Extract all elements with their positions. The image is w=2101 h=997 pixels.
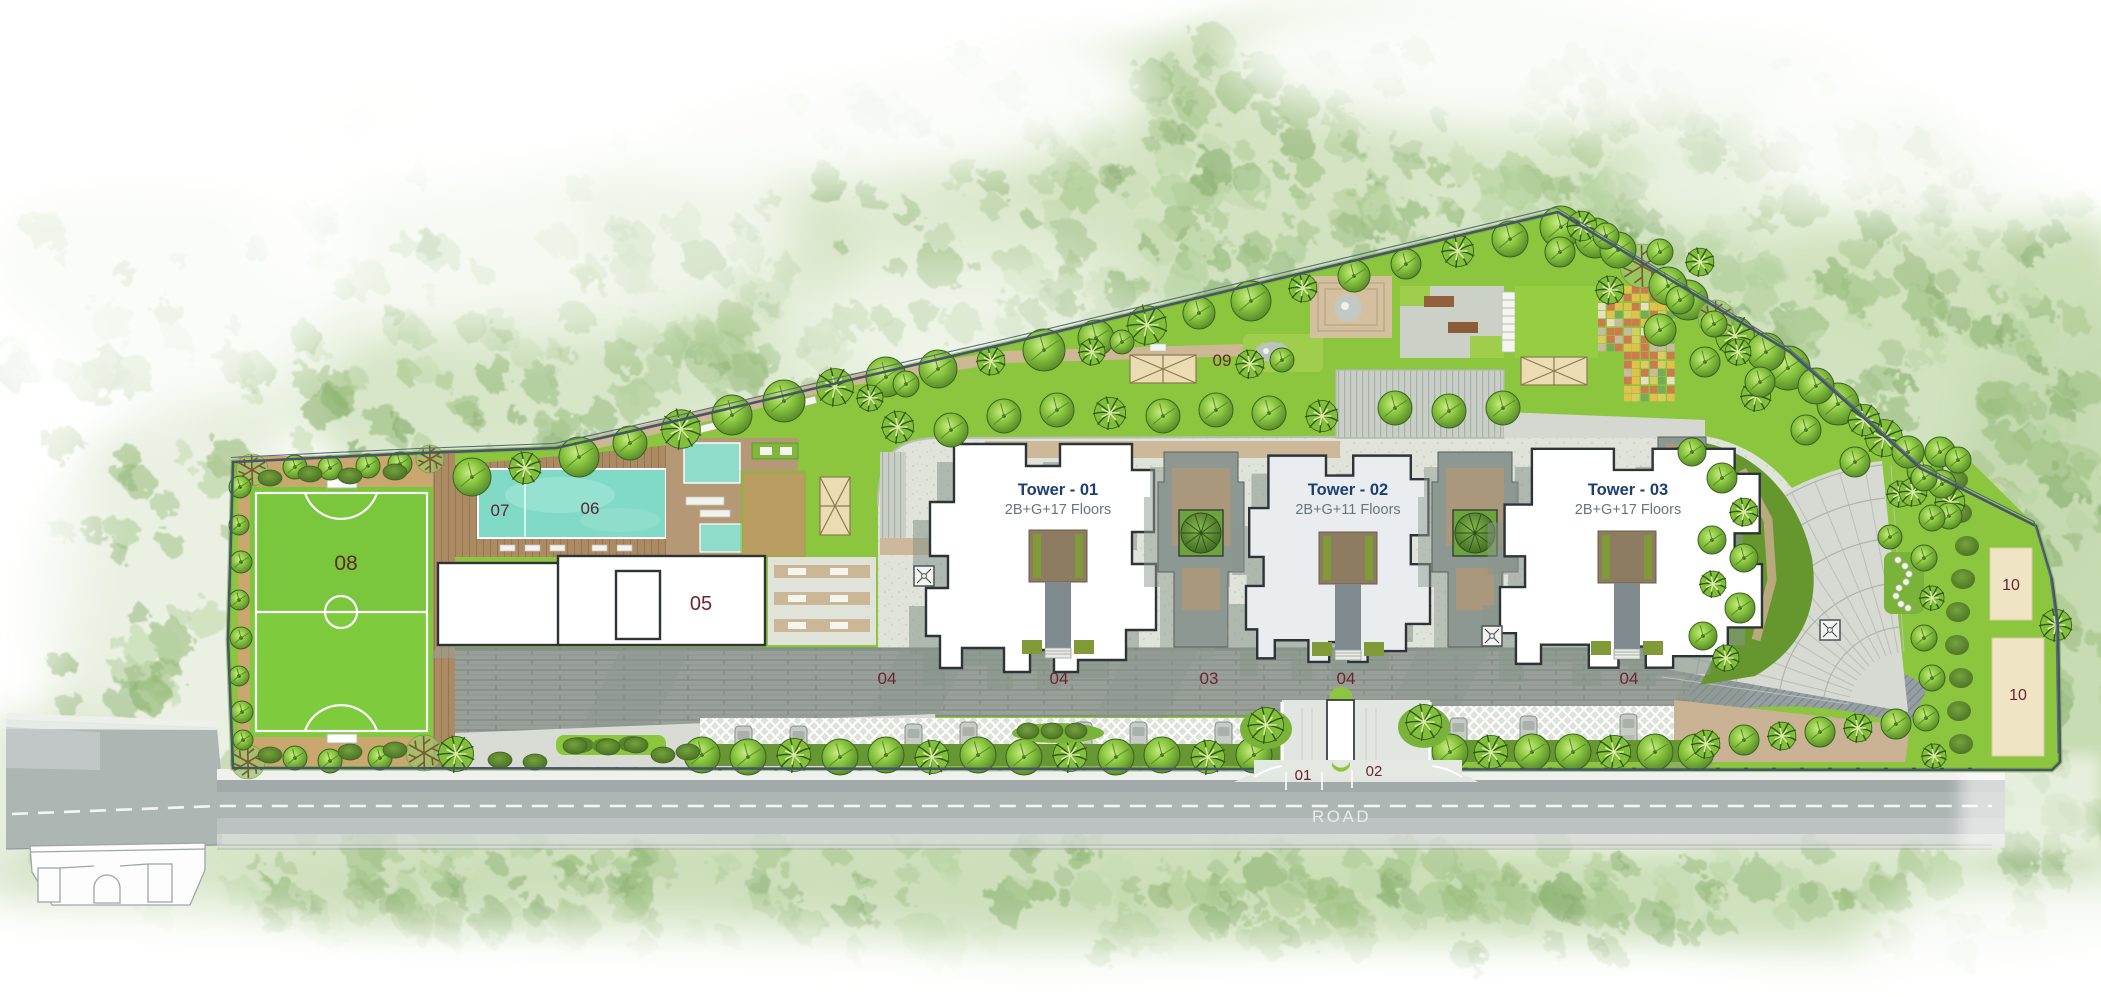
svg-text:03: 03 (1200, 669, 1219, 688)
svg-text:02: 02 (1366, 763, 1383, 780)
svg-text:09: 09 (1213, 351, 1232, 370)
svg-text:ROAD: ROAD (1312, 807, 1371, 826)
svg-text:10: 10 (2002, 577, 2020, 594)
svg-text:Tower - 02: Tower - 02 (1308, 481, 1388, 499)
svg-text:Tower - 03: Tower - 03 (1588, 481, 1668, 499)
svg-text:08: 08 (334, 552, 357, 575)
svg-text:05: 05 (690, 593, 712, 615)
svg-text:06: 06 (581, 499, 600, 518)
svg-text:04: 04 (878, 669, 897, 688)
svg-text:Tower - 01: Tower - 01 (1018, 481, 1098, 499)
svg-text:04: 04 (1050, 669, 1069, 688)
svg-text:07: 07 (491, 501, 510, 520)
svg-text:2B+G+17 Floors: 2B+G+17 Floors (1005, 502, 1111, 518)
svg-text:2B+G+17 Floors: 2B+G+17 Floors (1575, 502, 1681, 518)
svg-text:01: 01 (1295, 767, 1312, 784)
svg-text:04: 04 (1620, 669, 1639, 688)
svg-text:10: 10 (2009, 687, 2027, 704)
svg-text:2B+G+11 Floors: 2B+G+11 Floors (1295, 502, 1400, 518)
svg-text:04: 04 (1337, 669, 1356, 688)
